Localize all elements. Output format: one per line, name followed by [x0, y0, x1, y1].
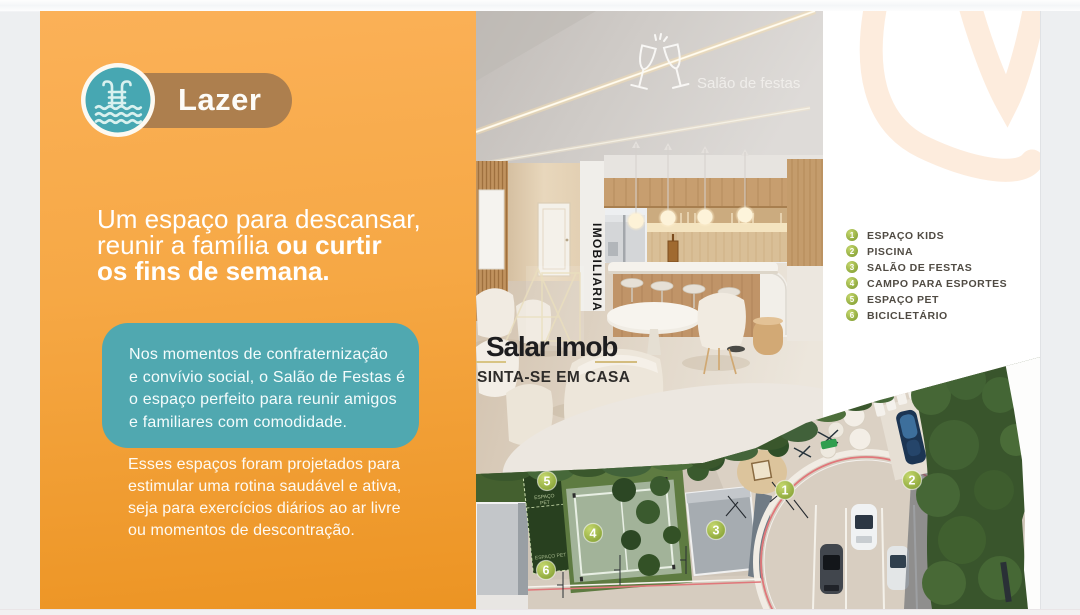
- svg-text:1: 1: [850, 231, 855, 240]
- svg-text:2: 2: [850, 247, 855, 256]
- svg-text:ESPAÇO PET: ESPAÇO PET: [867, 294, 939, 306]
- svg-text:1: 1: [782, 484, 789, 498]
- svg-text:3: 3: [850, 263, 855, 272]
- svg-text:ESPAÇO KIDS: ESPAÇO KIDS: [867, 230, 944, 242]
- svg-text:5: 5: [850, 295, 855, 304]
- svg-text:SALÃO DE FESTAS: SALÃO DE FESTAS: [867, 261, 972, 274]
- svg-text:6: 6: [543, 564, 550, 578]
- svg-text:PET: PET: [540, 500, 550, 507]
- svg-text:5: 5: [544, 475, 551, 489]
- svg-text:BICICLETÁRIO: BICICLETÁRIO: [867, 309, 948, 322]
- svg-text:3: 3: [713, 524, 720, 538]
- svg-text:2: 2: [909, 474, 916, 488]
- svg-text:4: 4: [850, 279, 855, 288]
- svg-text:4: 4: [590, 527, 597, 541]
- svg-text:6: 6: [850, 311, 855, 320]
- svg-text:Salão de festas: Salão de festas: [697, 75, 800, 92]
- svg-text:PISCINA: PISCINA: [867, 246, 913, 258]
- svg-text:CAMPO PARA ESPORTES: CAMPO PARA ESPORTES: [867, 278, 1007, 290]
